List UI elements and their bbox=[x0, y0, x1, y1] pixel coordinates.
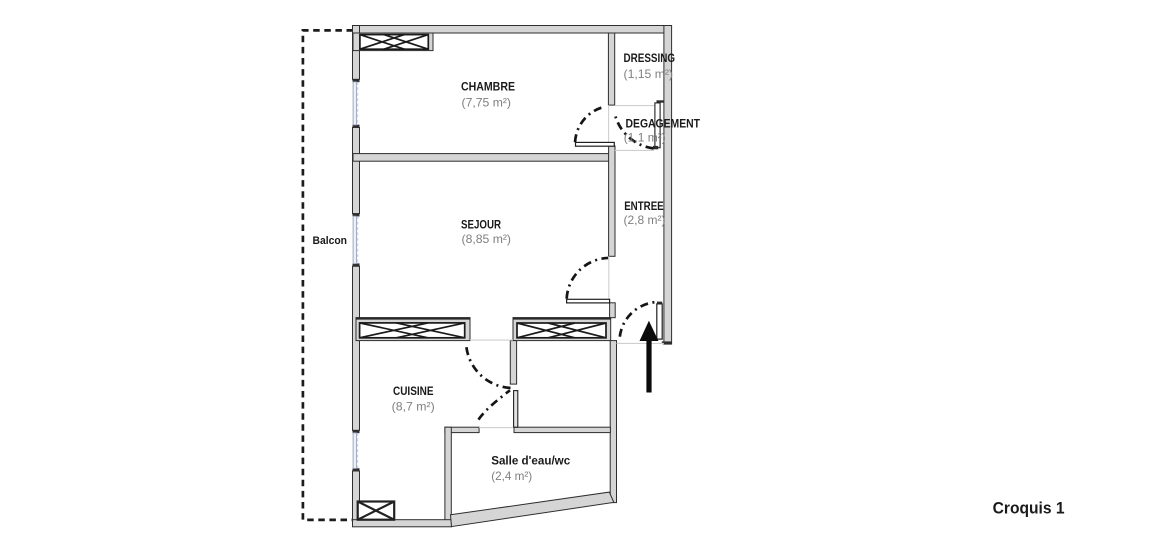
svg-text:CUISINE: CUISINE bbox=[393, 384, 434, 398]
svg-text:ENTREE: ENTREE bbox=[624, 199, 664, 213]
svg-text:(1,1 m²): (1,1 m²) bbox=[624, 131, 666, 145]
svg-text:(8,7 m²): (8,7 m²) bbox=[392, 399, 435, 413]
svg-text:(2,8 m²): (2,8 m²) bbox=[624, 213, 666, 227]
svg-text:DEGAGEMENT: DEGAGEMENT bbox=[626, 117, 701, 131]
svg-text:(2,4 m²): (2,4 m²) bbox=[491, 469, 532, 483]
svg-text:CHAMBRE: CHAMBRE bbox=[461, 80, 515, 94]
svg-text:(7,75 m²): (7,75 m²) bbox=[462, 95, 512, 109]
svg-text:DRESSING: DRESSING bbox=[624, 51, 676, 65]
svg-text:(1,15 m²): (1,15 m²) bbox=[624, 67, 674, 81]
svg-text:Balcon: Balcon bbox=[313, 235, 348, 247]
svg-text:Salle d'eau/wc: Salle d'eau/wc bbox=[491, 454, 570, 468]
svg-text:Croquis 1: Croquis 1 bbox=[993, 499, 1065, 518]
svg-text:(8,85 m²): (8,85 m²) bbox=[462, 232, 512, 246]
svg-text:SEJOUR: SEJOUR bbox=[461, 217, 501, 231]
